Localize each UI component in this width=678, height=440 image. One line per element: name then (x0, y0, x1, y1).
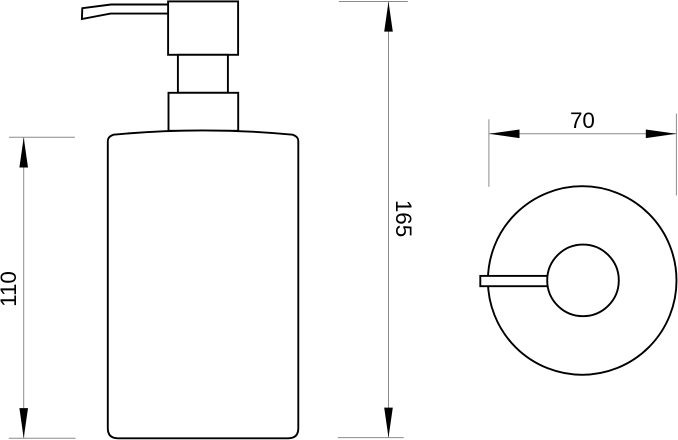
svg-text:110: 110 (0, 271, 21, 307)
svg-text:70: 70 (570, 108, 595, 133)
svg-text:165: 165 (391, 200, 416, 237)
